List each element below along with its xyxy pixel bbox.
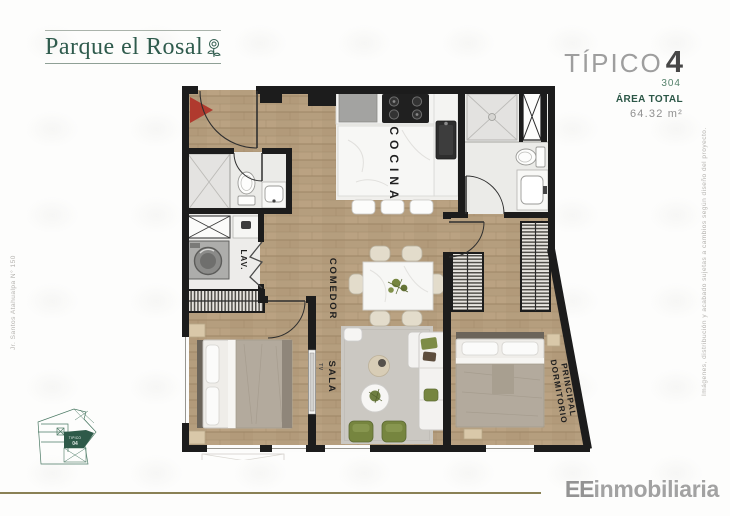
unit-type-label: TÍPICO: [564, 48, 663, 78]
label-laundry: LAV.: [239, 250, 248, 271]
bench: [464, 429, 482, 439]
dining-chair: [402, 246, 422, 261]
shower: [188, 154, 230, 210]
sink-icon: [262, 182, 286, 208]
pouf: [369, 356, 390, 377]
company-logo-rest: inmobiliaria: [594, 476, 719, 502]
planter: [202, 454, 284, 460]
fridge: [339, 93, 377, 122]
window: [325, 445, 370, 452]
disclaimer-vertical-text: Imágenes, distribución y acabado sujetas…: [701, 127, 708, 396]
sink-icon: [517, 170, 548, 210]
master-bed: [456, 332, 560, 439]
nightstand: [189, 324, 205, 337]
linen-closet: [523, 93, 541, 140]
window: [486, 445, 534, 452]
label-tv: TV: [317, 363, 323, 371]
dining-chair: [370, 246, 390, 261]
tv-console: [309, 350, 316, 414]
nightstand: [189, 431, 205, 444]
shower: [467, 94, 517, 140]
window: [207, 445, 260, 452]
accent-chair: [344, 328, 362, 341]
laundry-counter: [233, 216, 259, 238]
bedroom-2-bed: [189, 324, 292, 444]
unit-type: TÍPICO4: [564, 46, 683, 77]
keyplan-unit-label2: 04: [72, 441, 78, 447]
company-logo: EEinmobiliaria: [565, 477, 719, 502]
hall-closet: [186, 290, 264, 312]
footer-divider: [0, 492, 541, 494]
unit-type-number: 4: [666, 44, 683, 79]
street-address-vertical-text: Jr. Santos Atahualpa N° 150: [10, 255, 17, 350]
dining-chair: [349, 274, 364, 294]
keyplan: TIPICO 04: [28, 402, 106, 484]
keyplan-unit-label1: TIPICO: [69, 436, 82, 440]
kitchen-sink: [436, 121, 456, 159]
nightstand: [547, 334, 560, 346]
toilet-icon: [516, 147, 545, 167]
window: [272, 445, 306, 452]
label-kitchen: COCINA: [387, 126, 401, 203]
rose-icon: [205, 37, 223, 59]
kitchen-island: [338, 126, 434, 196]
coffee-table: [361, 384, 389, 412]
window: [182, 337, 189, 423]
brand-logo-text: Parque el Rosal: [45, 34, 203, 61]
dining-chair: [402, 311, 422, 326]
storage-box: [188, 216, 230, 238]
label-dining: COMEDOR: [327, 258, 338, 320]
company-logo-bold: EE: [565, 476, 594, 502]
dining-chair: [370, 311, 390, 326]
washing-machine-icon: [188, 241, 229, 279]
brand-logo: Parque el Rosal: [45, 30, 221, 64]
floor-plan: COCINA COMEDOR SALA LAV. TV DORMITORIO P…: [170, 78, 610, 460]
label-living: SALA: [326, 360, 337, 393]
floorplan-sheet: Parque el Rosal TÍPICO4 304 ÁREA TOTAL 6…: [0, 0, 730, 516]
stove-icon: [382, 94, 429, 123]
